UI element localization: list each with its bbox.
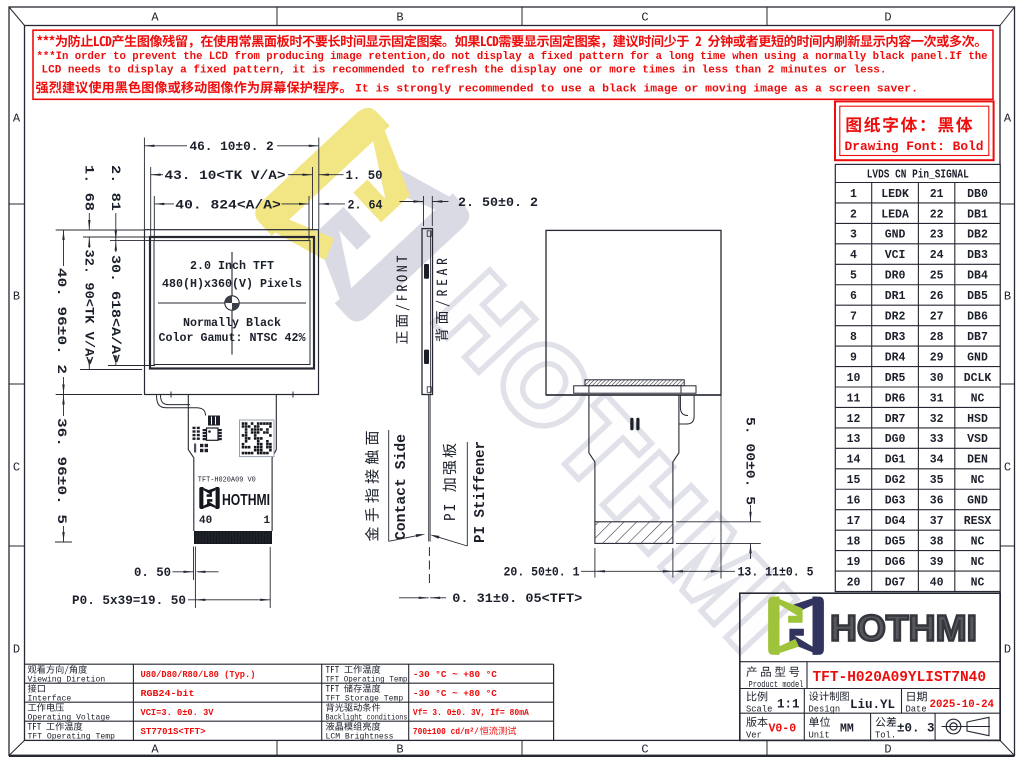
svg-text:LEDA: LEDA: [881, 208, 909, 221]
svg-text:2025-10-24: 2025-10-24: [930, 699, 995, 711]
svg-text:DR4: DR4: [885, 351, 906, 364]
svg-text:25: 25: [930, 270, 944, 283]
svg-text:TFT-H020A09YLIST7N40: TFT-H020A09YLIST7N40: [813, 670, 987, 686]
svg-text:39: 39: [930, 556, 944, 569]
svg-text:10: 10: [847, 372, 861, 385]
svg-text:2. 50±0. 2: 2. 50±0. 2: [458, 195, 538, 210]
svg-text:Contact Side: Contact Side: [394, 434, 410, 540]
svg-text:Product model: Product model: [749, 680, 804, 690]
svg-text:DG2: DG2: [885, 474, 906, 487]
svg-text:46. 10±0. 2: 46. 10±0. 2: [189, 139, 273, 154]
svg-text:32: 32: [930, 413, 944, 426]
svg-text:DG3: DG3: [885, 495, 906, 508]
svg-text:15: 15: [847, 474, 861, 487]
svg-text:LVDS CN Pin_SIGNAL: LVDS CN Pin_SIGNAL: [867, 169, 969, 182]
svg-text:36: 36: [930, 495, 944, 508]
svg-text:GND: GND: [967, 495, 988, 508]
svg-text:33: 33: [930, 433, 944, 446]
svg-text:2: 2: [850, 208, 857, 221]
svg-text:DR5: DR5: [885, 372, 906, 385]
svg-text:NC: NC: [971, 474, 985, 487]
svg-text:DB7: DB7: [967, 331, 988, 344]
svg-text:23: 23: [930, 229, 944, 242]
svg-text:Operating Voltage: Operating Voltage: [28, 713, 111, 722]
svg-text:20. 50±0. 1: 20. 50±0. 1: [504, 565, 580, 580]
svg-text:LCD needs to display a fixed p: LCD needs to display a fixed pattern, it…: [42, 65, 887, 77]
svg-text:VCI=3. 0±0. 3V: VCI=3. 0±0. 3V: [141, 707, 214, 718]
svg-text:RESX: RESX: [964, 515, 992, 528]
svg-text:40. 824<A/A>: 40. 824<A/A>: [175, 197, 281, 212]
svg-text:Unit: Unit: [809, 731, 830, 741]
svg-text:480(H)x360(V) Pixels: 480(H)x360(V) Pixels: [162, 277, 302, 291]
svg-text:C: C: [1004, 461, 1011, 475]
svg-text:HOTHMI: HOTHMI: [830, 608, 977, 649]
svg-text:VCI: VCI: [885, 249, 906, 262]
svg-text:DB1: DB1: [967, 208, 988, 221]
svg-text:HSD: HSD: [967, 413, 988, 426]
svg-text:B: B: [1004, 290, 1011, 304]
svg-text:DEN: DEN: [967, 454, 988, 467]
svg-text:RGB24-bit: RGB24-bit: [141, 688, 195, 699]
svg-text:U80/D80/R80/L80 (Typ.): U80/D80/R80/L80 (Typ.): [141, 669, 256, 680]
svg-text:16: 16: [847, 495, 861, 508]
svg-text:TFT Operating Temp: TFT Operating Temp: [326, 675, 408, 684]
svg-text:5. 00±0. 5: 5. 00±0. 5: [743, 417, 758, 505]
svg-text:HOTHMI: HOTHMI: [222, 492, 270, 509]
svg-text:LEDK: LEDK: [881, 188, 909, 201]
svg-text:43. 10<TK V/A>: 43. 10<TK V/A>: [165, 168, 286, 183]
svg-text:V0-0: V0-0: [769, 723, 797, 736]
svg-text:Normally Black: Normally Black: [183, 316, 281, 330]
svg-text:DR7: DR7: [885, 413, 906, 426]
svg-text:DR2: DR2: [885, 311, 906, 324]
svg-text:36. 96±0. 5: 36. 96±0. 5: [54, 418, 69, 524]
svg-text:NC: NC: [971, 535, 985, 548]
svg-text:DB0: DB0: [967, 188, 988, 201]
svg-text:DB2: DB2: [967, 229, 988, 242]
svg-text:1. 50: 1. 50: [346, 168, 383, 183]
svg-text:DG5: DG5: [885, 535, 906, 548]
svg-text:ST7701S<TFT>: ST7701S<TFT>: [141, 726, 206, 737]
svg-text:1: 1: [850, 188, 857, 201]
svg-text:Interface: Interface: [28, 694, 72, 703]
svg-text:Viewing Diretion: Viewing Diretion: [28, 675, 106, 684]
svg-text:Tol.: Tol.: [875, 731, 896, 741]
svg-text:0. 50: 0. 50: [134, 565, 171, 580]
svg-text:30: 30: [930, 372, 944, 385]
svg-text:NC: NC: [971, 576, 985, 589]
svg-text:DG4: DG4: [885, 515, 906, 528]
svg-text:B: B: [396, 743, 403, 757]
svg-text:P0. 5x39=19. 50: P0. 5x39=19. 50: [72, 593, 186, 608]
svg-text:40. 96±0. 2: 40. 96±0. 2: [54, 268, 69, 374]
svg-text:-30 °C ~ +80 °C: -30 °C ~ +80 °C: [413, 688, 497, 699]
svg-text:GND: GND: [967, 351, 988, 364]
svg-text:40: 40: [930, 576, 944, 589]
svg-text:38: 38: [930, 535, 944, 548]
svg-text:B: B: [396, 11, 403, 25]
svg-text:DG0: DG0: [885, 433, 906, 446]
svg-text:DR1: DR1: [885, 290, 906, 303]
svg-text:2. 81: 2. 81: [108, 165, 123, 211]
svg-text:D: D: [884, 743, 891, 757]
svg-text:***In order to prevent the LCD: ***In order to prevent the LCD from prod…: [37, 51, 988, 63]
svg-text:13. 11±0. 5: 13. 11±0. 5: [738, 565, 814, 580]
svg-text:TFT Operating Temp: TFT Operating Temp: [28, 732, 116, 741]
svg-text:DB6: DB6: [967, 311, 988, 324]
svg-text:17: 17: [847, 515, 861, 528]
svg-text:A: A: [1004, 112, 1012, 126]
svg-text:22: 22: [930, 208, 944, 221]
svg-text:5: 5: [850, 270, 857, 283]
svg-text:Backlight conditions: Backlight conditions: [326, 713, 408, 722]
svg-text:D: D: [1004, 643, 1011, 657]
svg-text:14: 14: [847, 454, 861, 467]
svg-text:2.0 Inch TFT: 2.0 Inch TFT: [190, 259, 274, 273]
svg-text:A: A: [151, 11, 159, 25]
svg-text:DB4: DB4: [967, 270, 988, 283]
svg-text:34: 34: [930, 454, 944, 467]
svg-text:B: B: [13, 290, 20, 304]
svg-text:±0. 3: ±0. 3: [897, 722, 935, 736]
svg-text:8: 8: [850, 331, 857, 344]
svg-text:C: C: [641, 11, 648, 25]
svg-text:A: A: [151, 743, 159, 757]
svg-text:11: 11: [847, 392, 861, 405]
svg-text:DB5: DB5: [967, 290, 988, 303]
svg-text:26: 26: [930, 290, 944, 303]
svg-text:700±100 cd/m²/: 700±100 cd/m²/: [413, 726, 479, 737]
svg-text:35: 35: [930, 474, 944, 487]
svg-text:D: D: [884, 11, 891, 25]
svg-text:DR3: DR3: [885, 331, 906, 344]
svg-text:24: 24: [930, 249, 944, 262]
svg-text:VSD: VSD: [967, 433, 988, 446]
svg-text:LCM Brightness: LCM Brightness: [326, 732, 394, 741]
svg-text:PI Stiffener: PI Stiffener: [473, 441, 489, 543]
svg-text:DR6: DR6: [885, 392, 906, 405]
svg-text:37: 37: [930, 515, 944, 528]
svg-text:DG6: DG6: [885, 556, 906, 569]
svg-text:A: A: [13, 112, 21, 126]
svg-text:Vf= 3. 0±0. 3V, If= 80mA: Vf= 3. 0±0. 3V, If= 80mA: [413, 707, 529, 718]
svg-text:C: C: [641, 743, 648, 757]
svg-text:-30 °C ~ +80 °C: -30 °C ~ +80 °C: [413, 669, 497, 680]
svg-text:40: 40: [199, 515, 212, 527]
svg-text:2. 64: 2. 64: [348, 197, 383, 212]
svg-text:1:1: 1:1: [777, 698, 800, 712]
svg-text:Scale: Scale: [746, 705, 772, 715]
svg-text:D: D: [13, 643, 20, 657]
svg-text:32. 90<TK V/A>: 32. 90<TK V/A>: [82, 250, 97, 365]
svg-text:Date: Date: [906, 705, 927, 715]
svg-text:28: 28: [930, 331, 944, 344]
svg-text:DG1: DG1: [885, 454, 906, 467]
svg-text:30. 618<A/A>: 30. 618<A/A>: [108, 255, 123, 363]
svg-text:C: C: [13, 461, 20, 475]
svg-text:1. 68: 1. 68: [82, 165, 97, 211]
svg-text:31: 31: [930, 392, 944, 405]
svg-text:Ver: Ver: [746, 731, 762, 741]
svg-text:13: 13: [847, 433, 861, 446]
svg-text:1: 1: [264, 515, 271, 527]
svg-text:TFT Storage Temp: TFT Storage Temp: [326, 694, 404, 703]
svg-text:3: 3: [850, 229, 857, 242]
svg-text:6: 6: [850, 290, 857, 303]
svg-text:0. 31±0. 05<TFT>: 0. 31±0. 05<TFT>: [452, 591, 582, 606]
svg-text:19: 19: [847, 556, 861, 569]
svg-text:Drawing Font: Bold: Drawing Font: Bold: [845, 140, 984, 154]
svg-text:GND: GND: [885, 229, 906, 242]
svg-text:DG7: DG7: [885, 576, 906, 589]
svg-text:18: 18: [847, 535, 861, 548]
svg-text:9: 9: [850, 351, 857, 364]
svg-text:Design: Design: [809, 705, 841, 715]
svg-text:DCLK: DCLK: [964, 372, 992, 385]
svg-text:Liu.YL: Liu.YL: [850, 698, 895, 712]
svg-text:21: 21: [930, 188, 944, 201]
svg-text:Color Gamut: NTSC 42%: Color Gamut: NTSC 42%: [159, 331, 307, 345]
svg-text:4: 4: [850, 249, 857, 262]
svg-text:NC: NC: [971, 392, 985, 405]
svg-text:It is strongly recommended to: It is strongly recommended to use a blac…: [355, 84, 918, 96]
svg-text:DR0: DR0: [885, 270, 906, 283]
svg-text:NC: NC: [971, 556, 985, 569]
svg-text:29: 29: [930, 351, 944, 364]
svg-text:DB3: DB3: [967, 249, 988, 262]
svg-text:20: 20: [847, 576, 861, 589]
svg-text:MM: MM: [840, 723, 854, 736]
svg-text:TFT-H020A09 V0: TFT-H020A09 V0: [198, 477, 256, 485]
svg-text:27: 27: [930, 311, 944, 324]
svg-text:7: 7: [850, 311, 857, 324]
svg-text:12: 12: [847, 413, 861, 426]
